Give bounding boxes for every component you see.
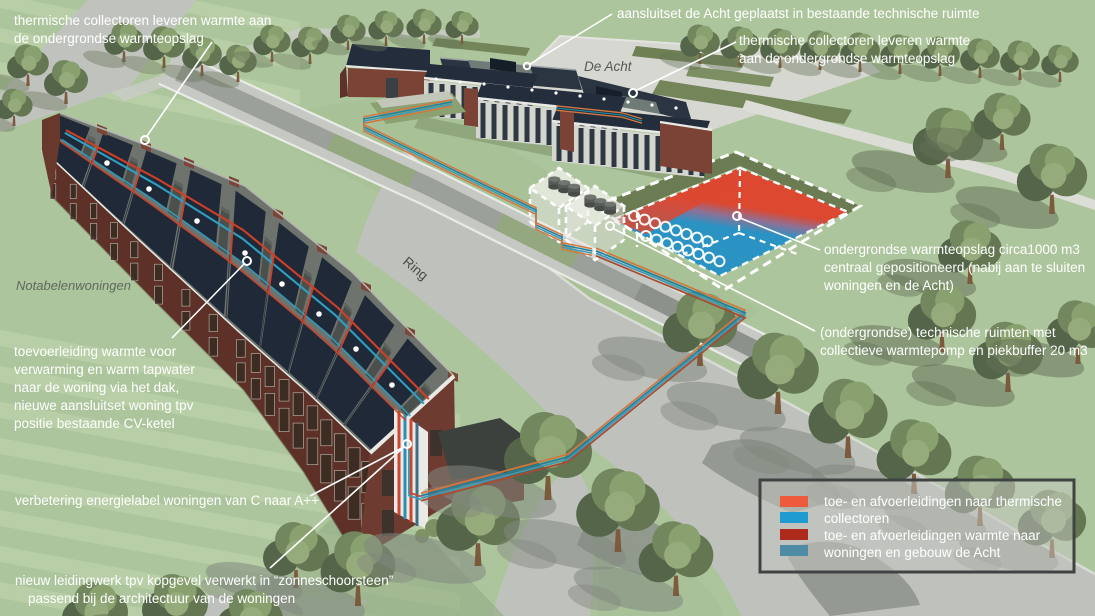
svg-text:positie bestaande CV-ketel: positie bestaande CV-ketel — [14, 416, 175, 431]
svg-text:centraal gepositioneerd (nabij: centraal gepositioneerd (nabij aan te sl… — [824, 260, 1085, 275]
svg-text:aan de ondergrondse warmteopsl: aan de ondergrondse warmteopslag — [739, 51, 955, 66]
svg-text:toe- en afvoerleidingen warmte: toe- en afvoerleidingen warmte naar — [824, 528, 1041, 543]
svg-text:ondergrondse warmteopslag circ: ondergrondse warmteopslag circa1000 m3 — [824, 242, 1080, 257]
svg-text:toe- en afvoerleidingen naar t: toe- en afvoerleidingen naar thermische — [824, 494, 1062, 509]
svg-text:collectoren: collectoren — [824, 511, 889, 526]
svg-text:woningen en de Acht): woningen en de Acht) — [823, 278, 954, 293]
svg-text:naar de woning via het dak,: naar de woning via het dak, — [14, 380, 179, 395]
svg-text:verwarming en warm tapwater: verwarming en warm tapwater — [14, 362, 195, 377]
svg-text:passend bij de architectuur va: passend bij de architectuur van de wonin… — [28, 591, 295, 606]
svg-text:(ondergrondse) technische ruim: (ondergrondse) technische ruimten met — [820, 325, 1056, 340]
svg-text:Notabelenwoningen: Notabelenwoningen — [16, 278, 131, 293]
svg-text:toevoerleiding warmte voor: toevoerleiding warmte voor — [14, 344, 177, 359]
svg-text:verbetering energielabel wonin: verbetering energielabel woningen van C … — [15, 493, 319, 508]
svg-text:thermische collectoren leveren: thermische collectoren leveren warmte aa… — [14, 13, 271, 28]
svg-text:collectieve warmtepomp en piek: collectieve warmtepomp en piekbuffer 20 … — [820, 343, 1088, 358]
svg-text:thermische collectoren leveren: thermische collectoren leveren warmte — [739, 33, 970, 48]
svg-text:aansluitset de Acht geplaatst: aansluitset de Acht geplaatst in bestaan… — [617, 6, 979, 21]
svg-text:woningen en gebouw de Acht: woningen en gebouw de Acht — [823, 545, 1001, 560]
svg-text:nieuwe aansluitset woning tpv: nieuwe aansluitset woning tpv — [14, 398, 194, 413]
svg-text:de ondergrondse warmteopslag: de ondergrondse warmteopslag — [14, 31, 204, 46]
svg-text:nieuw leidingwerk tpv kopgevel: nieuw leidingwerk tpv kopgevel verwerkt … — [15, 573, 393, 588]
svg-text:De Acht: De Acht — [584, 59, 633, 74]
